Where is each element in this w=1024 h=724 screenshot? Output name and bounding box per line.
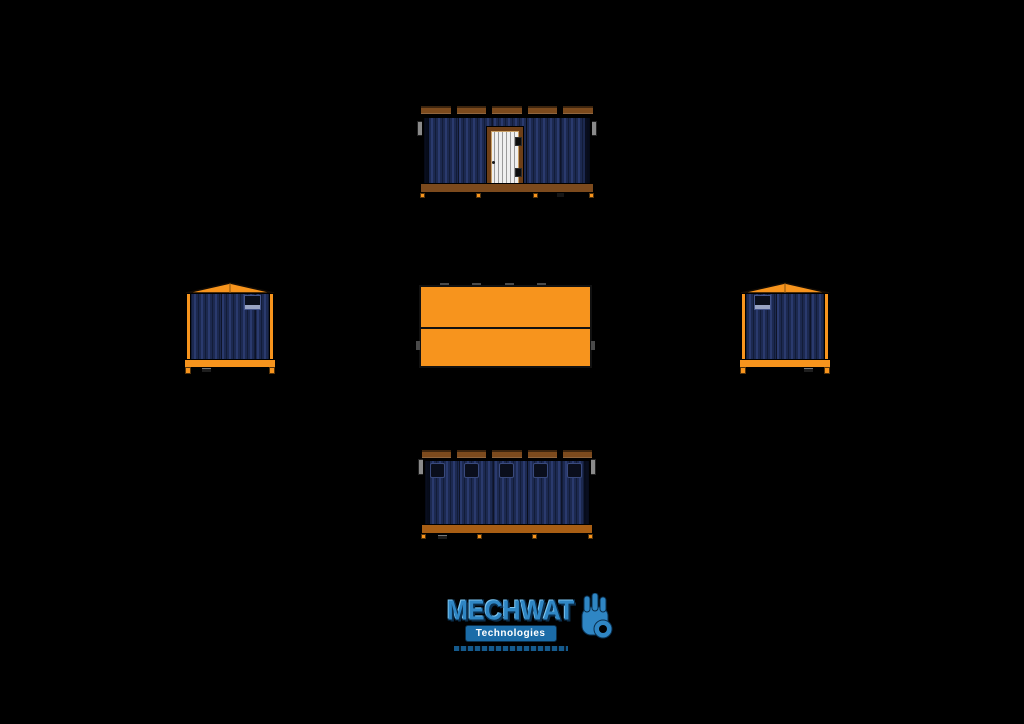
- front-elevation-view: [417, 103, 597, 198]
- roof-rail-segment: [456, 449, 487, 459]
- container-foot: [420, 193, 425, 198]
- floor-rail: [184, 359, 276, 368]
- container-foot: [477, 534, 482, 539]
- roof-rail: [420, 105, 594, 115]
- door-handle: [492, 161, 495, 164]
- roof-side-tab: [416, 341, 420, 350]
- floor-rail: [739, 359, 831, 368]
- door-hinge: [515, 137, 522, 146]
- ground-step: [438, 535, 447, 539]
- logo-subtitle-badge: Technologies: [465, 625, 557, 642]
- container-foot: [588, 534, 593, 539]
- rear-elevation-view: [418, 447, 596, 539]
- drain-fitting: [557, 193, 564, 197]
- vent-window: [244, 295, 261, 310]
- roof-rail-segment: [527, 449, 558, 459]
- roof-rail-segment: [420, 105, 452, 115]
- entry-door: [487, 127, 523, 188]
- company-logo: MECHWAT Technologies: [447, 597, 617, 657]
- roof-rail-segment: [491, 105, 523, 115]
- container-foot: [589, 193, 594, 198]
- container-foot: [476, 193, 481, 198]
- right-side-elevation-view: [741, 282, 829, 374]
- logo-text-column: MECHWAT Technologies: [447, 597, 574, 651]
- vent-window: [754, 295, 771, 310]
- door-hinges: [515, 137, 522, 177]
- corner-post: [186, 293, 191, 362]
- small-window: [430, 463, 445, 478]
- roof-rail: [421, 449, 593, 459]
- roof-panel-seam: [419, 327, 592, 329]
- container-foot: [269, 367, 275, 374]
- left-side-elevation-view: [186, 282, 274, 374]
- drawing-canvas: MECHWAT Technologies: [0, 0, 1024, 724]
- door-hinge: [515, 168, 522, 177]
- container-foot: [824, 367, 830, 374]
- container-foot: [185, 367, 191, 374]
- floor-rail: [421, 524, 593, 534]
- feet-row: [420, 193, 594, 198]
- roof-side-tab: [591, 341, 595, 350]
- roof-rail-segment: [562, 105, 594, 115]
- roof-plan-view: [418, 283, 593, 370]
- corner-post: [269, 293, 274, 362]
- small-window: [567, 463, 582, 478]
- small-window: [464, 463, 479, 478]
- ok-hand-icon: [576, 593, 616, 641]
- container-foot: [532, 534, 537, 539]
- container-foot: [740, 367, 746, 374]
- roof-rail-segment: [456, 105, 488, 115]
- roof-rail-segment: [421, 449, 452, 459]
- corner-post: [741, 293, 746, 362]
- roof-rail-segment: [491, 449, 522, 459]
- container-foot: [421, 534, 426, 539]
- ground-step: [202, 368, 211, 372]
- roof-rail-segment: [527, 105, 559, 115]
- logo-row: MECHWAT Technologies: [447, 597, 617, 651]
- small-window: [533, 463, 548, 478]
- container-foot: [533, 193, 538, 198]
- small-window: [499, 463, 514, 478]
- corner-post: [824, 293, 829, 362]
- window-row: [430, 463, 582, 478]
- floor-rail: [420, 183, 594, 193]
- logo-tagline-bar: [454, 646, 568, 651]
- logo-brand-text: MECHWAT: [447, 597, 574, 625]
- roof-rail-segment: [562, 449, 593, 459]
- ground-step: [804, 368, 813, 372]
